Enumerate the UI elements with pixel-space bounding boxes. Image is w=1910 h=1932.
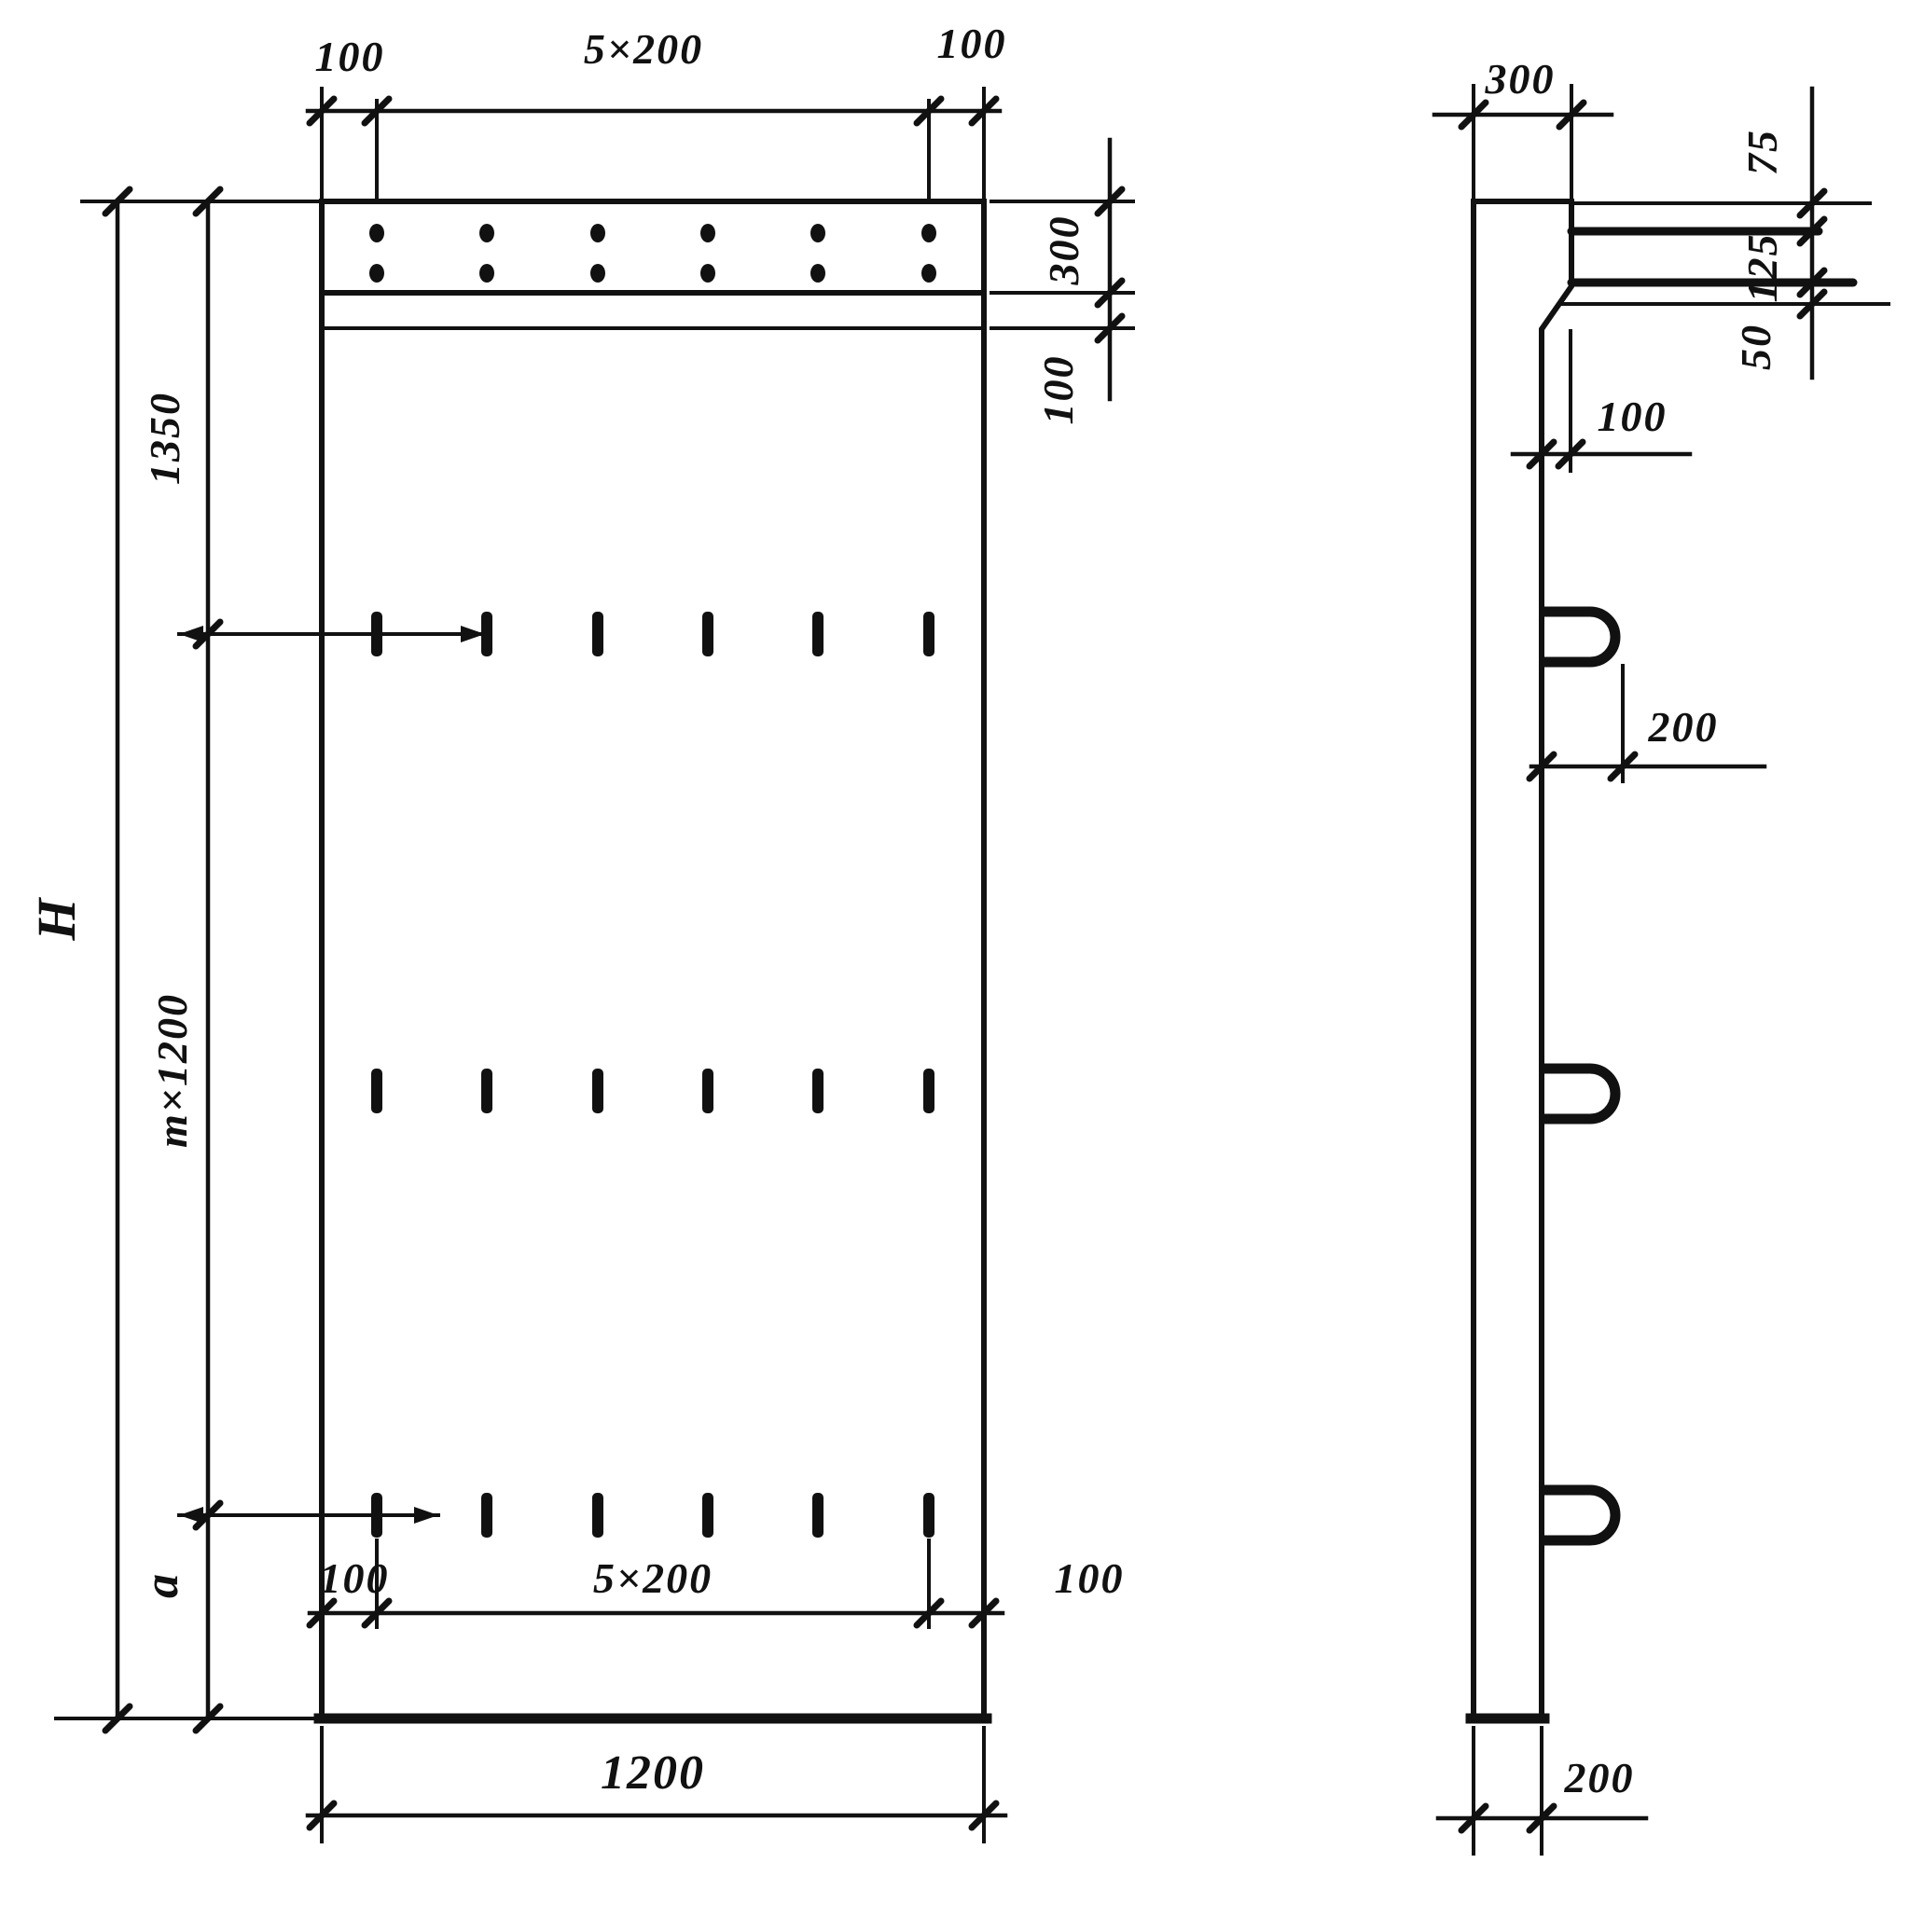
side-dim-label-chamfer: 100 — [1598, 393, 1668, 440]
slot-mark — [702, 1069, 713, 1113]
dim-label-bottom-margin-right: 100 — [1055, 1554, 1125, 1602]
side-dim-label-plate-bottom-offset: 50 — [1732, 324, 1779, 370]
anchor-dot — [479, 224, 494, 242]
slot-mark — [371, 1069, 382, 1113]
dim-label-segment-middle: m×1200 — [148, 993, 196, 1148]
anchor-dot — [479, 264, 494, 283]
dim-label-bottom-pitch: 5×200 — [593, 1554, 713, 1602]
front-width-dimension: 1200 — [308, 1728, 1005, 1842]
dim-label-height-total: H — [26, 896, 87, 941]
front-bottom-dimension: 100 5×200 100 — [310, 1540, 1125, 1627]
slot-mark — [481, 1069, 492, 1113]
slot-mark — [592, 612, 603, 656]
anchor-dot — [810, 224, 825, 242]
anchor-dot — [590, 264, 605, 283]
slot-row-2 — [371, 1069, 934, 1113]
technical-drawing-page: 100 5×200 100 300 100 — [0, 0, 1910, 1932]
dim-label-top-margin-right: 100 — [937, 20, 1007, 67]
side-dim-label-plate-gap: 125 — [1738, 233, 1786, 303]
dim-label-width-total: 1200 — [601, 1746, 705, 1800]
anchor-dot — [700, 264, 715, 283]
slot-row-3 — [371, 1493, 934, 1538]
side-loop-dimension: 200 — [1529, 664, 1765, 781]
slot-mark — [812, 1493, 824, 1538]
front-top-dimension: 100 5×200 100 — [308, 20, 1007, 200]
anchor-dot — [700, 224, 715, 242]
anchor-dot — [921, 224, 936, 242]
lifting-loop-2 — [1544, 1069, 1615, 1119]
anchor-dot — [590, 224, 605, 242]
anchor-dot-grid — [369, 224, 936, 283]
side-view: 300 75 125 50 100 200 — [1434, 55, 1889, 1854]
lifting-loop-1 — [1544, 612, 1615, 662]
side-dim-label-loop-protrusion: 200 — [1648, 703, 1719, 751]
front-left-dimensions: 1350 m×1200 a H — [26, 189, 485, 1731]
slot-mark — [923, 1493, 934, 1538]
slot-mark — [592, 1493, 603, 1538]
anchor-dot — [810, 264, 825, 283]
side-dim-label-bottom-width: 200 — [1564, 1754, 1635, 1801]
anchor-dot — [369, 264, 384, 283]
dim-label-band-strip: 100 — [1034, 355, 1082, 425]
drawing-canvas: 100 5×200 100 300 100 — [0, 0, 1910, 1932]
anchor-dot — [921, 264, 936, 283]
anchor-dot — [369, 224, 384, 242]
side-top-dimension: 300 — [1434, 55, 1612, 198]
front-view: 100 5×200 100 300 100 — [26, 20, 1133, 1842]
dim-label-top-pitch: 5×200 — [584, 25, 703, 73]
arrow-right-icon — [414, 1507, 438, 1524]
dim-label-segment-bottom: a — [135, 1572, 188, 1598]
side-bottom-dimension: 200 — [1438, 1728, 1646, 1854]
side-dim-label-top-width: 300 — [1485, 55, 1556, 103]
side-dim-label-plate-top-offset: 75 — [1738, 129, 1786, 175]
front-panel-outline — [322, 201, 984, 1718]
lifting-loop-3 — [1544, 1490, 1615, 1540]
slot-mark — [923, 1069, 934, 1113]
dim-label-band-height: 300 — [1040, 215, 1087, 286]
slot-mark — [923, 612, 934, 656]
slot-mark — [702, 612, 713, 656]
side-plate-dimensions: 75 125 50 — [1732, 89, 1824, 378]
dim-label-segment-top: 1350 — [141, 392, 188, 485]
slot-mark — [481, 1493, 492, 1538]
slot-mark — [592, 1069, 603, 1113]
slot-mark — [812, 612, 824, 656]
dim-label-top-margin-left: 100 — [315, 33, 385, 80]
front-band-dimension: 300 100 — [991, 140, 1133, 425]
slot-mark — [702, 1493, 713, 1538]
slot-mark — [812, 1069, 824, 1113]
dim-label-bottom-margin-left: 100 — [320, 1554, 390, 1602]
